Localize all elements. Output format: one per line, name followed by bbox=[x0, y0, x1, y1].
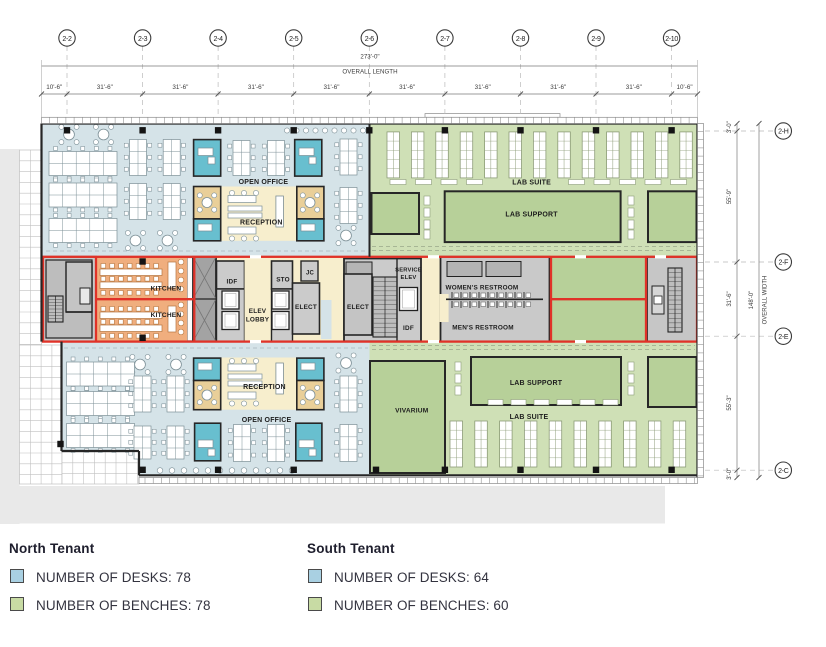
svg-text:2-6: 2-6 bbox=[365, 36, 375, 43]
svg-text:IDF: IDF bbox=[403, 325, 414, 332]
svg-text:273'-0": 273'-0" bbox=[360, 54, 379, 61]
svg-text:2-4: 2-4 bbox=[213, 36, 223, 43]
svg-text:31'-6": 31'-6" bbox=[399, 84, 415, 91]
svg-text:31'-6": 31'-6" bbox=[727, 291, 733, 306]
svg-text:ELEV: ELEV bbox=[249, 308, 267, 315]
svg-text:STO: STO bbox=[276, 277, 290, 284]
svg-text:VIVARIUM: VIVARIUM bbox=[395, 408, 429, 415]
svg-text:LAB SUITE: LAB SUITE bbox=[512, 179, 551, 186]
svg-text:55'-9": 55'-9" bbox=[727, 189, 733, 204]
svg-text:3'-0": 3'-0" bbox=[727, 468, 733, 480]
svg-text:KITCHEN: KITCHEN bbox=[151, 312, 182, 319]
svg-text:LAB SUPPORT: LAB SUPPORT bbox=[510, 380, 563, 387]
svg-text:MEN'S RESTROOM: MEN'S RESTROOM bbox=[452, 325, 513, 332]
svg-text:31'-6": 31'-6" bbox=[550, 84, 566, 91]
svg-text:IDF: IDF bbox=[227, 279, 238, 286]
svg-text:2-C: 2-C bbox=[778, 468, 789, 475]
svg-text:SERVICE: SERVICE bbox=[395, 268, 422, 274]
svg-text:55'-3": 55'-3" bbox=[727, 395, 733, 410]
svg-text:2-E: 2-E bbox=[778, 334, 789, 341]
svg-text:2-5: 2-5 bbox=[289, 36, 299, 43]
svg-text:JC: JC bbox=[306, 271, 315, 277]
svg-text:LAB SUPPORT: LAB SUPPORT bbox=[505, 212, 558, 219]
svg-text:OVERALL LENGTH: OVERALL LENGTH bbox=[342, 69, 397, 76]
svg-text:10'-6": 10'-6" bbox=[46, 84, 62, 91]
svg-text:31'-6": 31'-6" bbox=[97, 84, 113, 91]
svg-text:ELEV: ELEV bbox=[401, 275, 417, 281]
svg-text:2-10: 2-10 bbox=[665, 36, 678, 43]
svg-text:OVERALL WIDTH: OVERALL WIDTH bbox=[763, 276, 769, 325]
svg-text:RECEPTION: RECEPTION bbox=[240, 220, 283, 227]
svg-text:31'-6": 31'-6" bbox=[626, 84, 642, 91]
svg-text:ELECT: ELECT bbox=[295, 304, 317, 311]
svg-text:2-7: 2-7 bbox=[440, 36, 450, 43]
svg-text:LOBBY: LOBBY bbox=[246, 317, 270, 324]
svg-text:OPEN OFFICE: OPEN OFFICE bbox=[242, 417, 292, 424]
svg-text:OPEN OFFICE: OPEN OFFICE bbox=[239, 179, 289, 186]
svg-text:31'-6": 31'-6" bbox=[172, 84, 188, 91]
svg-text:2-9: 2-9 bbox=[591, 36, 601, 43]
svg-text:WOMEN'S RESTROOM: WOMEN'S RESTROOM bbox=[446, 285, 519, 292]
svg-text:31'-6": 31'-6" bbox=[323, 84, 339, 91]
svg-text:31'-6": 31'-6" bbox=[248, 84, 264, 91]
svg-text:10'-6": 10'-6" bbox=[677, 84, 693, 91]
svg-text:3'-0": 3'-0" bbox=[727, 121, 733, 133]
svg-text:LAB SUITE: LAB SUITE bbox=[510, 414, 549, 421]
svg-text:31'-6": 31'-6" bbox=[475, 84, 491, 91]
svg-text:2-2: 2-2 bbox=[62, 36, 72, 43]
svg-text:2-8: 2-8 bbox=[516, 36, 526, 43]
svg-text:2-3: 2-3 bbox=[138, 36, 148, 43]
svg-text:ELECT: ELECT bbox=[347, 304, 369, 311]
svg-text:KITCHEN: KITCHEN bbox=[151, 286, 182, 293]
svg-text:148'-0": 148'-0" bbox=[749, 291, 755, 310]
svg-text:2-F: 2-F bbox=[778, 260, 788, 267]
svg-text:RECEPTION: RECEPTION bbox=[243, 384, 286, 391]
svg-text:2-H: 2-H bbox=[778, 129, 789, 136]
